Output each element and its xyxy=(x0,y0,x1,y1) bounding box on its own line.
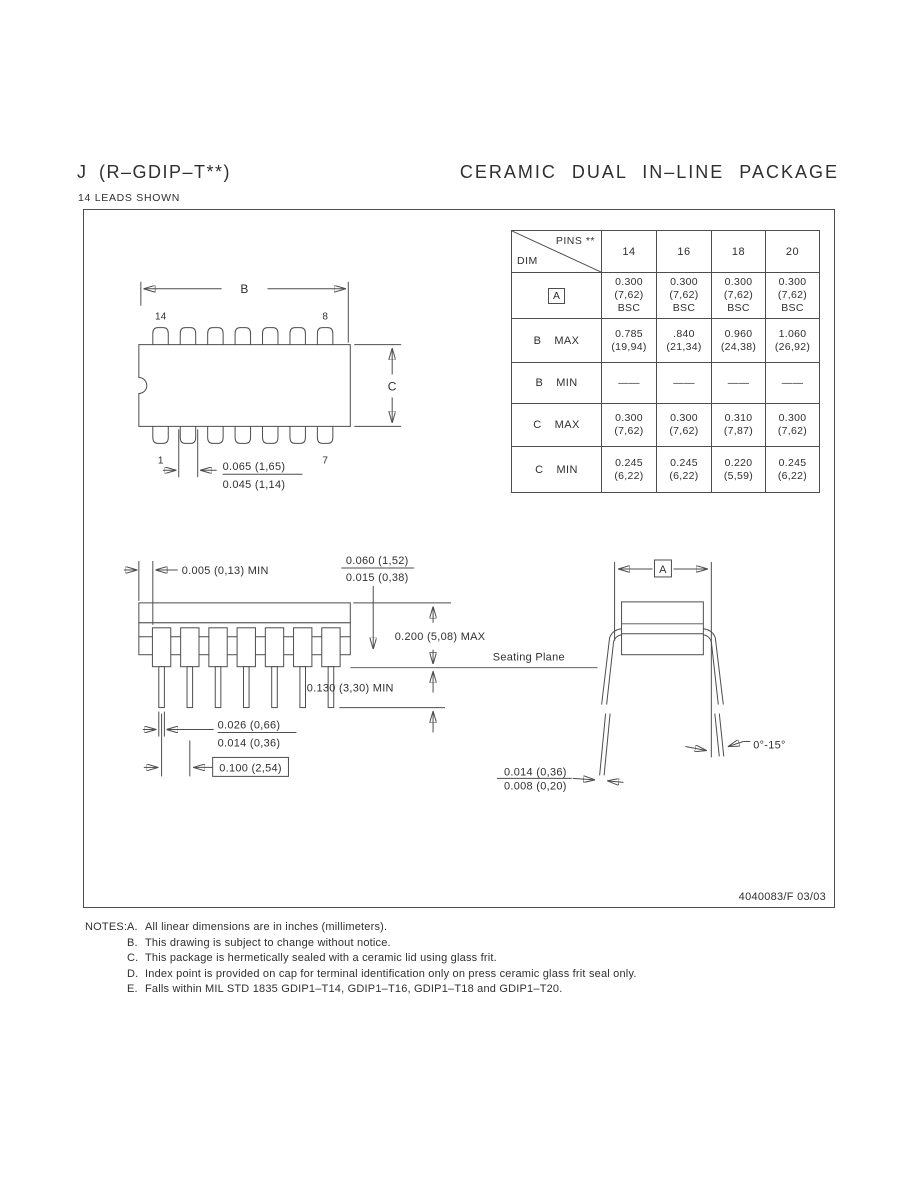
pin-7-label: 7 xyxy=(322,455,328,466)
row-label-c-min: CMIN xyxy=(512,447,602,493)
seating-plane-label: Seating Plane xyxy=(493,652,565,664)
leads-shown-subtitle: 14 LEADS SHOWN xyxy=(78,192,180,204)
lead-thickness-min-label: 0.008 (0,20) xyxy=(504,780,567,792)
note-e: E. Falls within MIL STD 1835 GDIP1–T14, … xyxy=(85,982,830,998)
col-header-14: 14 xyxy=(602,231,657,273)
note-d: D. Index point is provided on cap for te… xyxy=(85,967,830,983)
note-c: C. This package is hermetically sealed w… xyxy=(85,951,830,967)
pins-header: PINS ** xyxy=(556,235,595,247)
lead-width-min-label: 0.045 (1,14) xyxy=(223,479,286,491)
lead-angle-label: 0°-15° xyxy=(753,739,785,751)
pin-1-label: 1 xyxy=(158,455,164,466)
package-code-title: J (R–GDIP–T**) xyxy=(77,162,231,183)
lead-length-label: 0.130 (3,30) MIN xyxy=(307,683,394,695)
package-type-title: CERAMIC DUAL IN–LINE PACKAGE xyxy=(460,162,839,183)
top-view-drawing: B 14 8 xyxy=(139,282,401,491)
note-a: NOTES: A. All linear dimensions are in i… xyxy=(85,920,830,936)
dim-header: DIM xyxy=(517,255,538,267)
end-view-drawing: A 0°-15° 0.014 (0,36) xyxy=(497,560,786,792)
lead-pitch-label: 0.100 (2,54) xyxy=(219,762,282,774)
dim-b-label: B xyxy=(240,282,248,296)
package-body-end-view xyxy=(622,602,704,655)
dim-a-label: A xyxy=(659,564,667,576)
col-header-18: 18 xyxy=(712,231,766,273)
dim-c-label: C xyxy=(388,379,397,393)
row-label-b-min: BMIN xyxy=(512,363,602,404)
package-lid-side-view xyxy=(139,603,350,623)
col-header-20: 20 xyxy=(766,231,820,273)
notes-label: NOTES: xyxy=(85,920,127,936)
table-row-b-min: BMIN —— —— —— —— xyxy=(512,363,820,404)
tip-width-min-label: 0.014 (0,36) xyxy=(218,737,281,749)
table-row-c-min: CMIN 0.245(6,22) 0.245(6,22) 0.220(5,59)… xyxy=(512,447,820,493)
document-number: 4040083/F 03/03 xyxy=(739,891,826,903)
lid-min-label: 0.015 (0,38) xyxy=(346,572,409,584)
lid-max-label: 0.060 (1,52) xyxy=(346,555,409,567)
table-corner-cell: PINS ** DIM xyxy=(512,231,602,273)
table-row-c-max: CMAX 0.300(7,62) 0.300(7,62) 0.310(7,87)… xyxy=(512,404,820,447)
side-view-drawing: 0.005 (0,13) MIN 0.060 (1,52) 0.015 (0,3… xyxy=(124,555,598,776)
notes-section: NOTES: A. All linear dimensions are in i… xyxy=(85,920,830,998)
dimension-table: PINS ** DIM 14 16 18 20 A 0.300(7,62)BSC… xyxy=(511,230,820,493)
pin-14-label: 14 xyxy=(155,312,167,323)
lead-width-max-label: 0.065 (1,65) xyxy=(223,461,286,473)
row-label-a: A xyxy=(512,273,602,319)
col-header-16: 16 xyxy=(657,231,712,273)
lead-thickness-max-label: 0.014 (0,36) xyxy=(504,766,567,778)
tip-width-max-label: 0.026 (0,66) xyxy=(218,720,281,732)
package-body-top-view xyxy=(139,345,350,427)
row-label-c-max: CMAX xyxy=(512,404,602,447)
pin-8-label: 8 xyxy=(322,312,328,323)
body-height-label: 0.200 (5,08) MAX xyxy=(395,631,486,643)
standoff-dim-label: 0.005 (0,13) MIN xyxy=(182,565,269,577)
datasheet-page: J (R–GDIP–T**) CERAMIC DUAL IN–LINE PACK… xyxy=(0,0,918,1188)
table-row-a: A 0.300(7,62)BSC 0.300(7,62)BSC 0.300(7,… xyxy=(512,273,820,319)
row-label-b-max: BMAX xyxy=(512,319,602,363)
table-row-b-max: BMAX 0.785(19,94) .840(21,34) 0.960(24,3… xyxy=(512,319,820,363)
note-b: B. This drawing is subject to change wit… xyxy=(85,936,830,952)
